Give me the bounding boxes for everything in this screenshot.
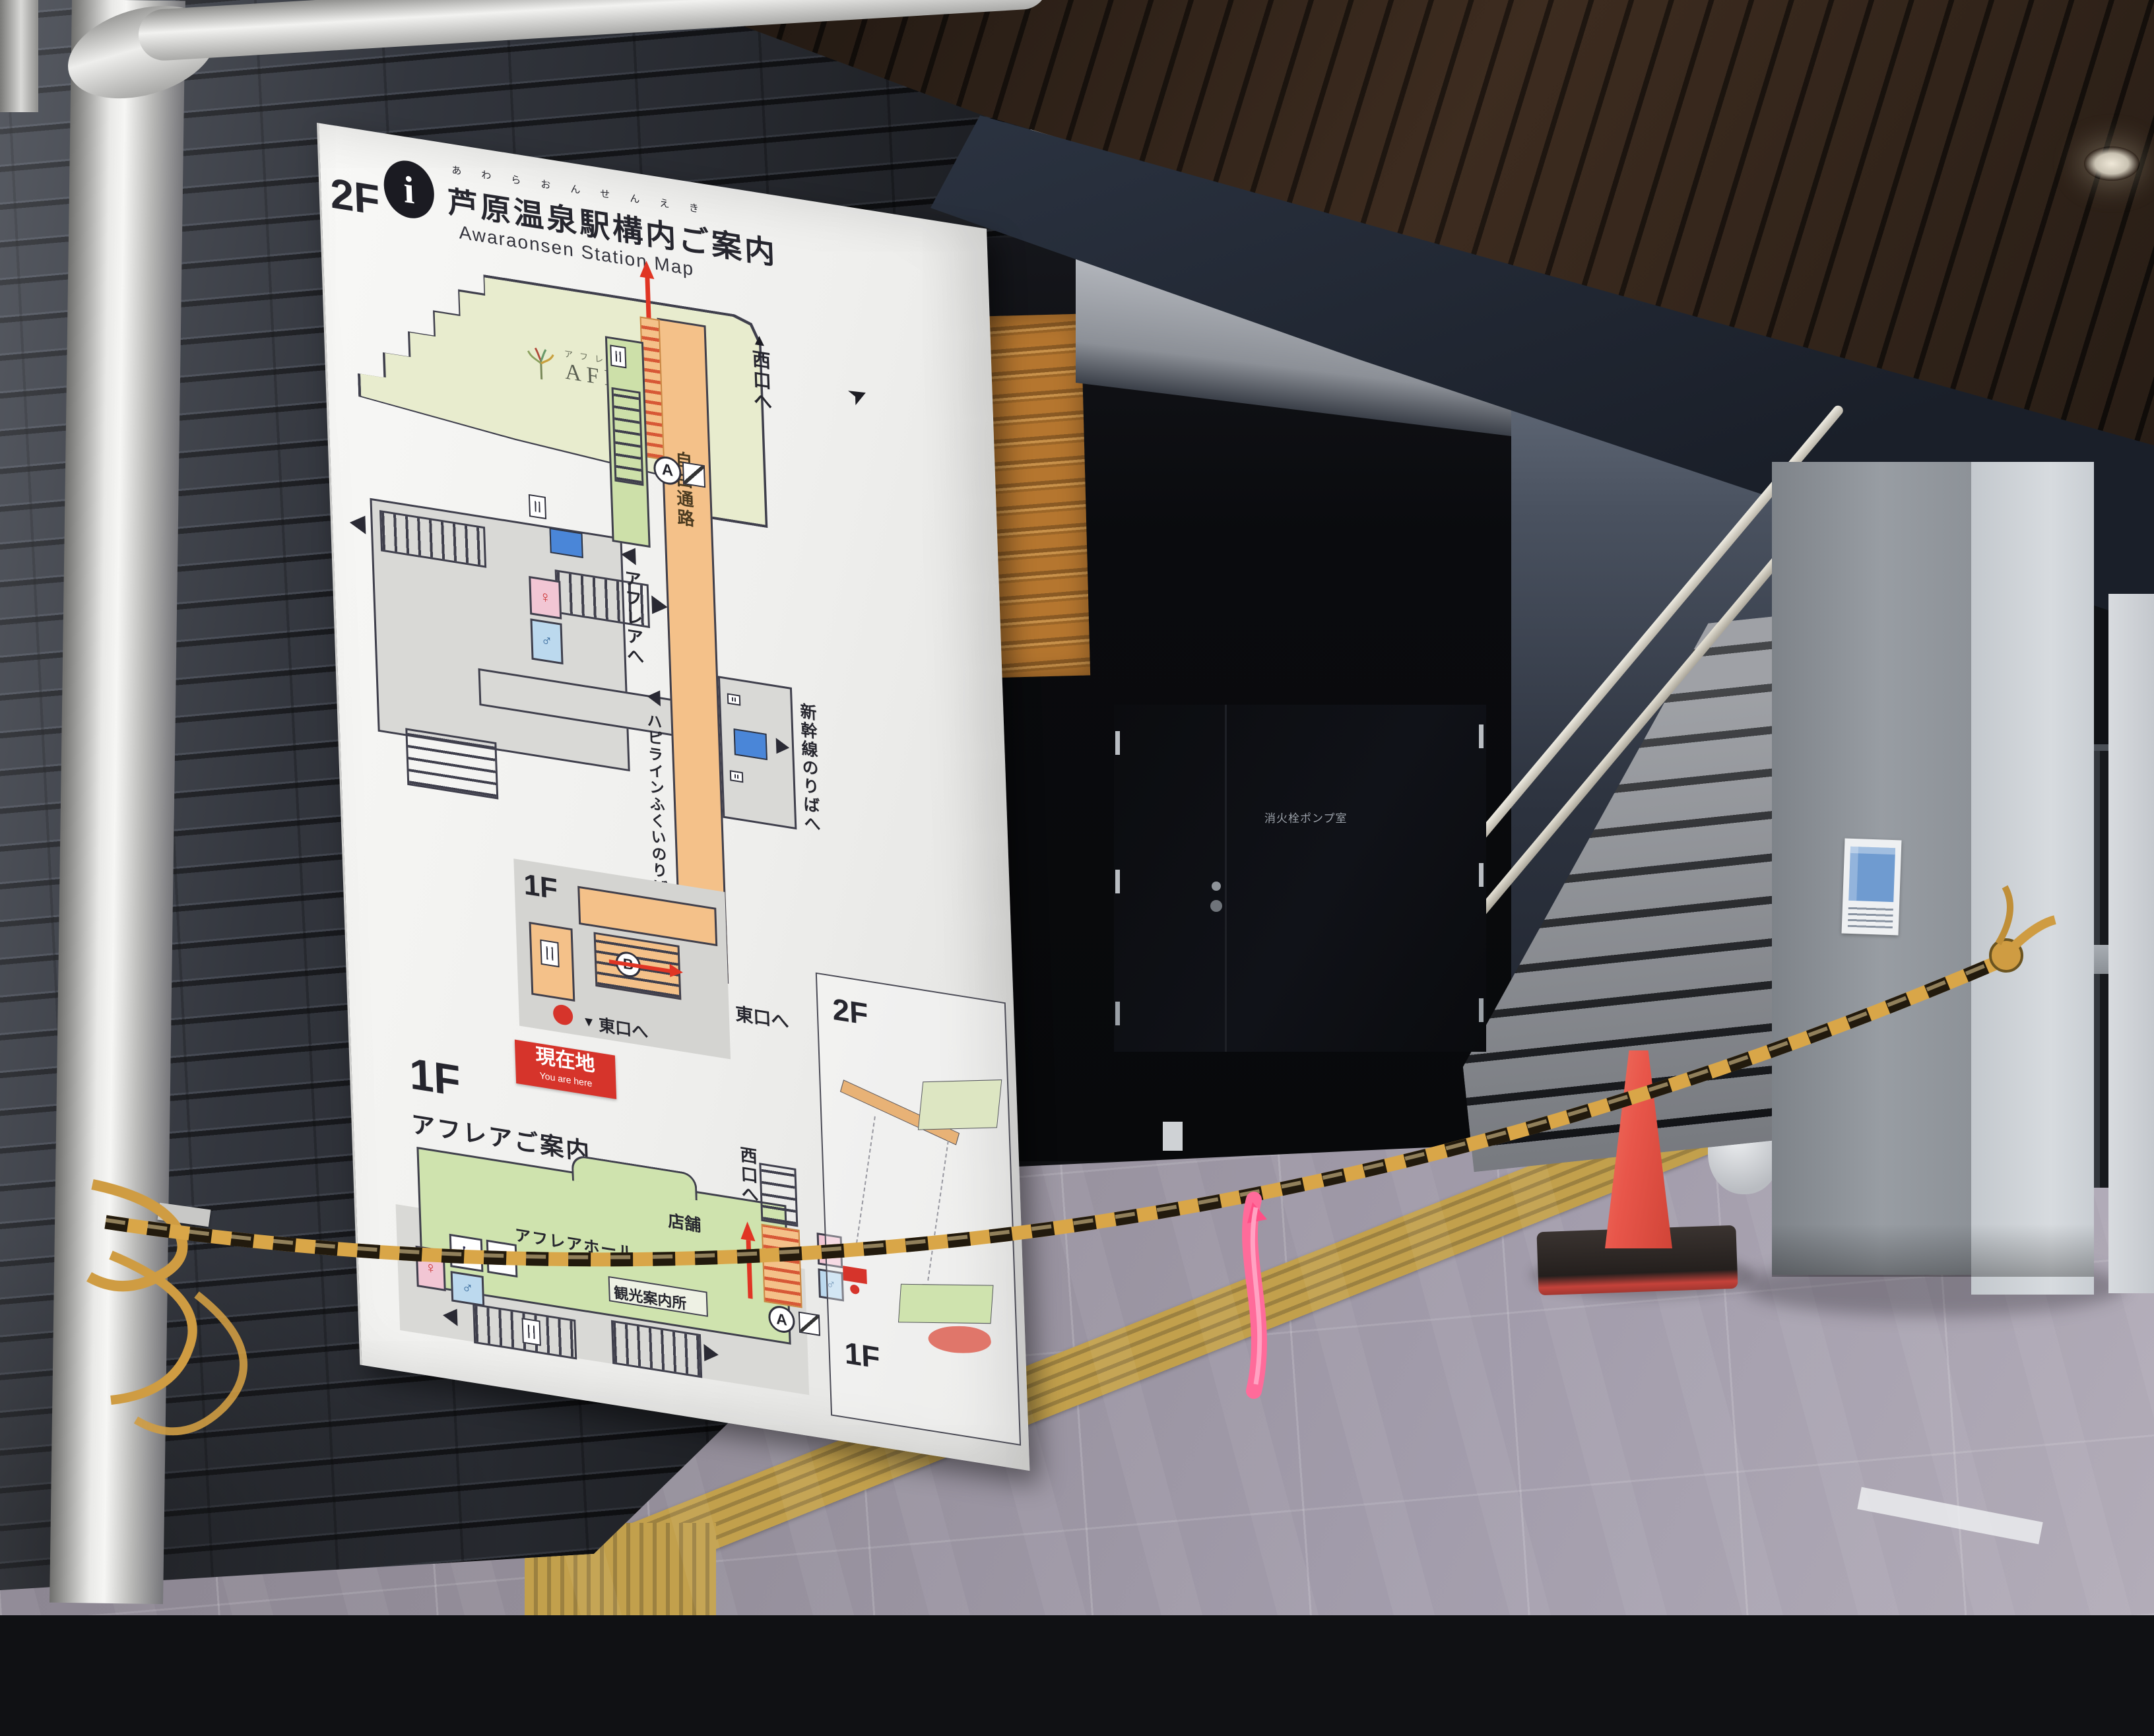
pink-ribbon: [1247, 1200, 1267, 1391]
barrier-rope: [0, 0, 2154, 1615]
rope-knot: [1990, 887, 2055, 971]
